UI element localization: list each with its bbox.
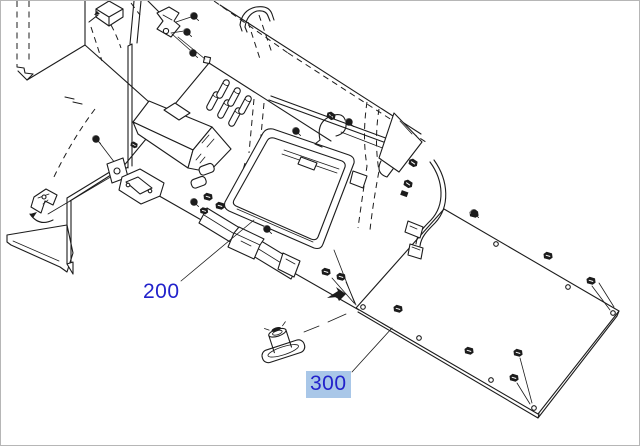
- frame-edge-strip: [53, 1, 141, 179]
- leader-line-300: [352, 328, 392, 372]
- left-frame-panel: [17, 1, 149, 102]
- part-label-200[interactable]: 200: [143, 280, 180, 304]
- assembly-arrow-icon: [327, 287, 346, 301]
- part-label-300[interactable]: 300: [306, 371, 351, 398]
- top-screw-cluster: [148, 1, 205, 59]
- screw-icon: [189, 49, 197, 57]
- screw-icon: [190, 12, 198, 20]
- screw-icon: [183, 28, 191, 36]
- clip-nut-icon: [587, 277, 596, 285]
- shield-plate-300: [322, 209, 620, 418]
- clip-nut-icon: [216, 202, 225, 210]
- screw-icon: [190, 198, 198, 206]
- foot-leader-line: [304, 314, 346, 332]
- shield-module-box: [133, 101, 231, 172]
- clip-nut-icon: [322, 268, 331, 276]
- diagram-canvas: 200 300: [0, 0, 640, 446]
- lower-left-bracket: [7, 170, 114, 274]
- clamp-bracket: [30, 172, 119, 222]
- clip-nut-icon: [544, 252, 553, 260]
- screw-icon: [292, 127, 300, 135]
- foot-grommet: [254, 318, 306, 364]
- clip-nut-icon: [204, 193, 213, 201]
